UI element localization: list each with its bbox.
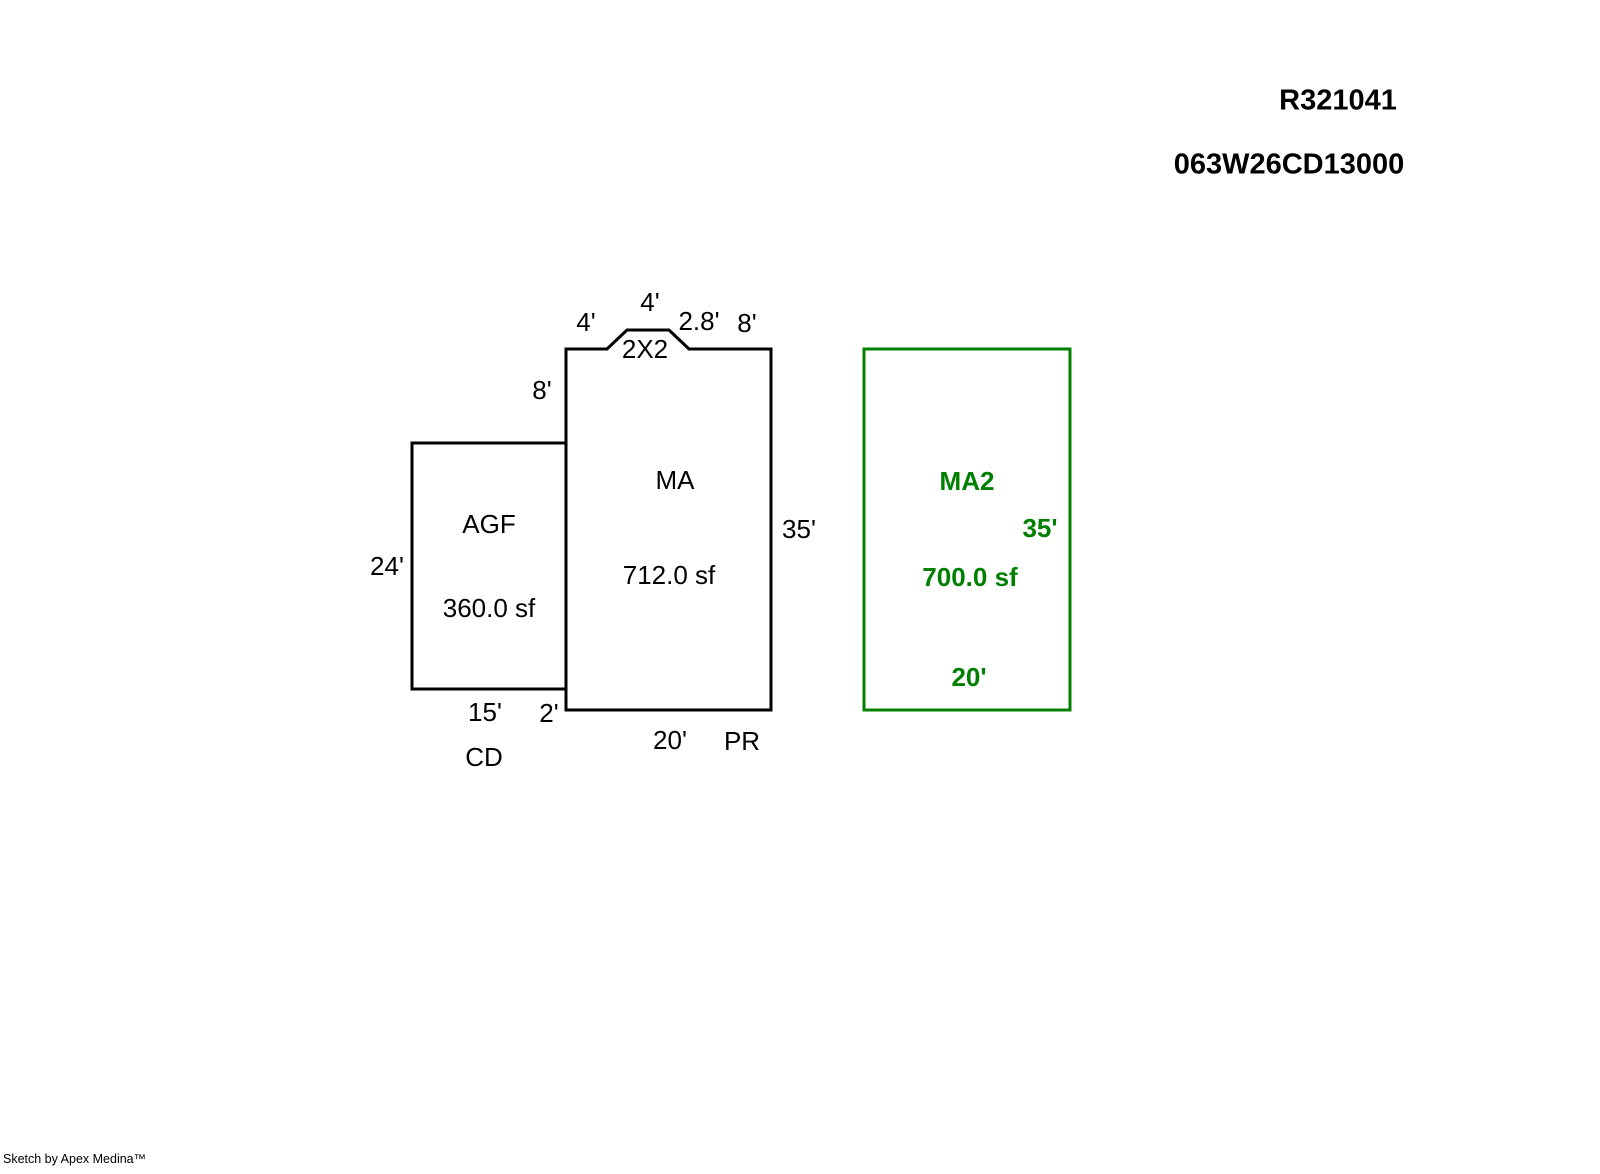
sketch-drawing [0,0,1600,1174]
label-ma2-code: MA2 [940,468,995,494]
dim-ma-notch-diagonal: 2.8' [678,308,719,334]
ma-outline [566,330,771,710]
dim-agf-left: 24' [370,553,404,579]
dim-ma2-right: 35' [1022,515,1057,541]
label-agf-bottom-code: CD [465,744,503,770]
dim-ma-left-upper: 8' [532,377,551,403]
label-agf-area: 360.0 sf [443,595,536,621]
label-agf-code: AGF [462,511,515,537]
dim-ma-right: 35' [782,516,816,542]
dim-ma-notch-right: 8' [737,310,756,336]
dim-agf-bottom: 15' [468,699,502,725]
sketch-credit: Sketch by Apex Medina™ [3,1153,146,1166]
dim-ma-bottom: 20' [653,727,687,753]
sketch-page: R321041 063W26CD13000 4' 4' 2.8' 8' 2X2 … [0,0,1600,1174]
dim-ma-notch-left: 4' [576,309,595,335]
label-ma-code: MA [656,467,695,493]
agf-outline [412,443,566,689]
label-ma-notch: 2X2 [622,336,668,362]
dim-ma-left-lower: 2' [539,700,558,726]
label-ma-bottom-code: PR [724,728,760,754]
label-ma-area: 712.0 sf [623,562,716,588]
label-ma2-area: 700.0 sf [922,564,1017,590]
dim-ma-notch-top: 4' [640,289,659,315]
dim-ma2-bottom: 20' [951,664,986,690]
